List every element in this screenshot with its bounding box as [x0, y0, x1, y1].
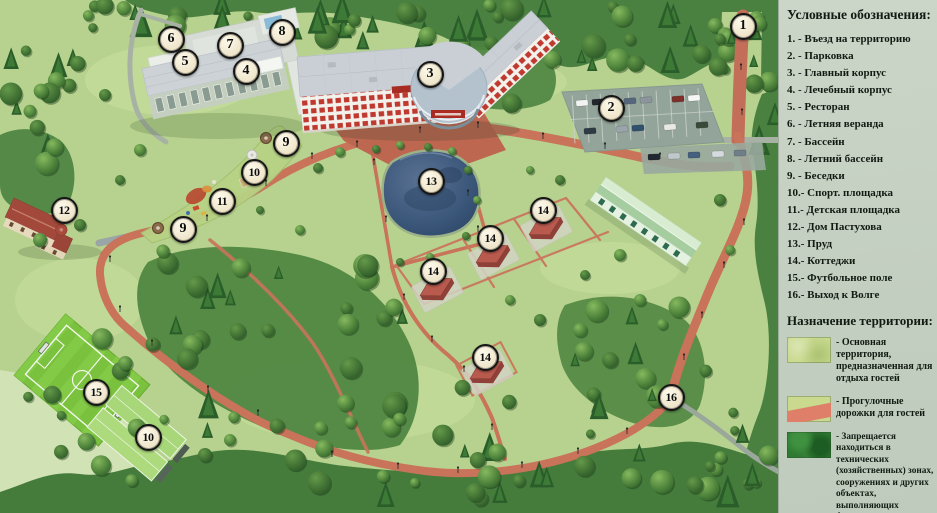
- territory-title: Назначение территории:: [787, 313, 934, 329]
- map-marker-14: 14: [472, 344, 499, 371]
- legend-item-15: 15.- Футбольное поле: [787, 270, 934, 287]
- map-marker-1: 1: [730, 13, 757, 40]
- zone-swatch-restricted: [787, 432, 831, 458]
- territory-zone-main-territory: - Основная территория, предназначенная д…: [787, 337, 934, 386]
- legend-item-2: 2. - Парковка: [787, 48, 934, 65]
- zone-text-walking-paths: - Прогулочные дорожки для гостей: [836, 396, 934, 422]
- legend-item-11: 11.- Детская площадка: [787, 202, 934, 219]
- map-marker-15: 15: [83, 379, 110, 406]
- legend-item-8: 8. - Летний бассейн: [787, 151, 934, 168]
- map-marker-4: 4: [233, 58, 260, 85]
- map-marker-7: 7: [217, 32, 244, 59]
- map-marker-16: 16: [658, 384, 685, 411]
- map-marker-8: 8: [269, 19, 296, 46]
- legend-item-16: 16.- Выход к Волге: [787, 287, 934, 304]
- legend-item-13: 13.- Пруд: [787, 236, 934, 253]
- legend-item-10: 10.- Спорт. площадка: [787, 185, 934, 202]
- map-marker-3: 3: [417, 61, 444, 88]
- legend-item-4: 4. - Лечебный корпус: [787, 82, 934, 99]
- map-marker-2: 2: [598, 95, 625, 122]
- legend-title: Условные обозначения:: [787, 7, 934, 23]
- legend-item-3: 3. - Главный корпус: [787, 65, 934, 82]
- map-marker-14: 14: [420, 258, 447, 285]
- map-marker-13: 13: [418, 168, 445, 195]
- legend-items: 1. - Въезд на территорию2. - Парковка3. …: [787, 31, 934, 305]
- territory-zones: - Основная территория, предназначенная д…: [787, 337, 934, 513]
- legend-item-1: 1. - Въезд на территорию: [787, 31, 934, 48]
- map-marker-5: 5: [172, 49, 199, 76]
- map-marker-9: 9: [170, 216, 197, 243]
- legend-item-12: 12.- Дом Пастухова: [787, 219, 934, 236]
- legend-item-6: 6. - Летняя веранда: [787, 116, 934, 133]
- map-marker-10: 10: [135, 424, 162, 451]
- legend-item-5: 5. - Ресторан: [787, 99, 934, 116]
- zone-text-restricted: - Запрещается находиться в технических (…: [836, 432, 934, 513]
- map-marker-6: 6: [158, 26, 185, 53]
- map-marker-9: 9: [273, 130, 300, 157]
- legend-item-14: 14.- Коттеджи: [787, 253, 934, 270]
- map-marker-12: 12: [51, 197, 78, 224]
- zone-swatch-walking-paths: [787, 396, 831, 422]
- territory-zone-restricted: - Запрещается находиться в технических (…: [787, 432, 934, 513]
- map-marker-10: 10: [241, 159, 268, 186]
- zone-swatch-main-territory: [787, 337, 831, 363]
- legend-item-9: 9. - Беседки: [787, 168, 934, 185]
- resort-site-map: 12345678991010111213141414141516 Условны…: [0, 0, 937, 513]
- zone-text-main-territory: - Основная территория, предназначенная д…: [836, 337, 934, 386]
- legend-panel: Условные обозначения: 1. - Въезд на терр…: [778, 0, 937, 513]
- territory-zone-walking-paths: - Прогулочные дорожки для гостей: [787, 396, 934, 422]
- map-marker-14: 14: [477, 225, 504, 252]
- map-marker-14: 14: [530, 197, 557, 224]
- map-marker-11: 11: [209, 188, 236, 215]
- legend-item-7: 7. - Бассейн: [787, 134, 934, 151]
